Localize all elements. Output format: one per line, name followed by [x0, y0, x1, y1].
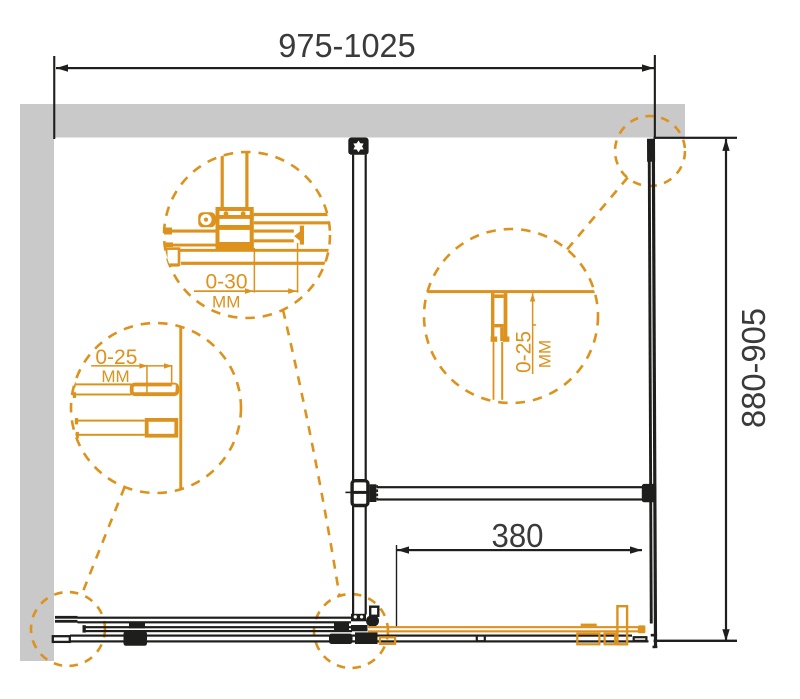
svg-text:ММ: ММ [101, 367, 129, 386]
svg-text:0-25: 0-25 [95, 346, 137, 369]
svg-text:975-1025: 975-1025 [278, 27, 416, 64]
svg-text:380: 380 [492, 517, 544, 554]
svg-text:ММ: ММ [212, 293, 240, 312]
svg-text:0-25: 0-25 [513, 331, 536, 373]
svg-text:ММ: ММ [536, 340, 555, 368]
svg-text:880-905: 880-905 [735, 308, 772, 428]
svg-text:0-30: 0-30 [205, 271, 247, 294]
